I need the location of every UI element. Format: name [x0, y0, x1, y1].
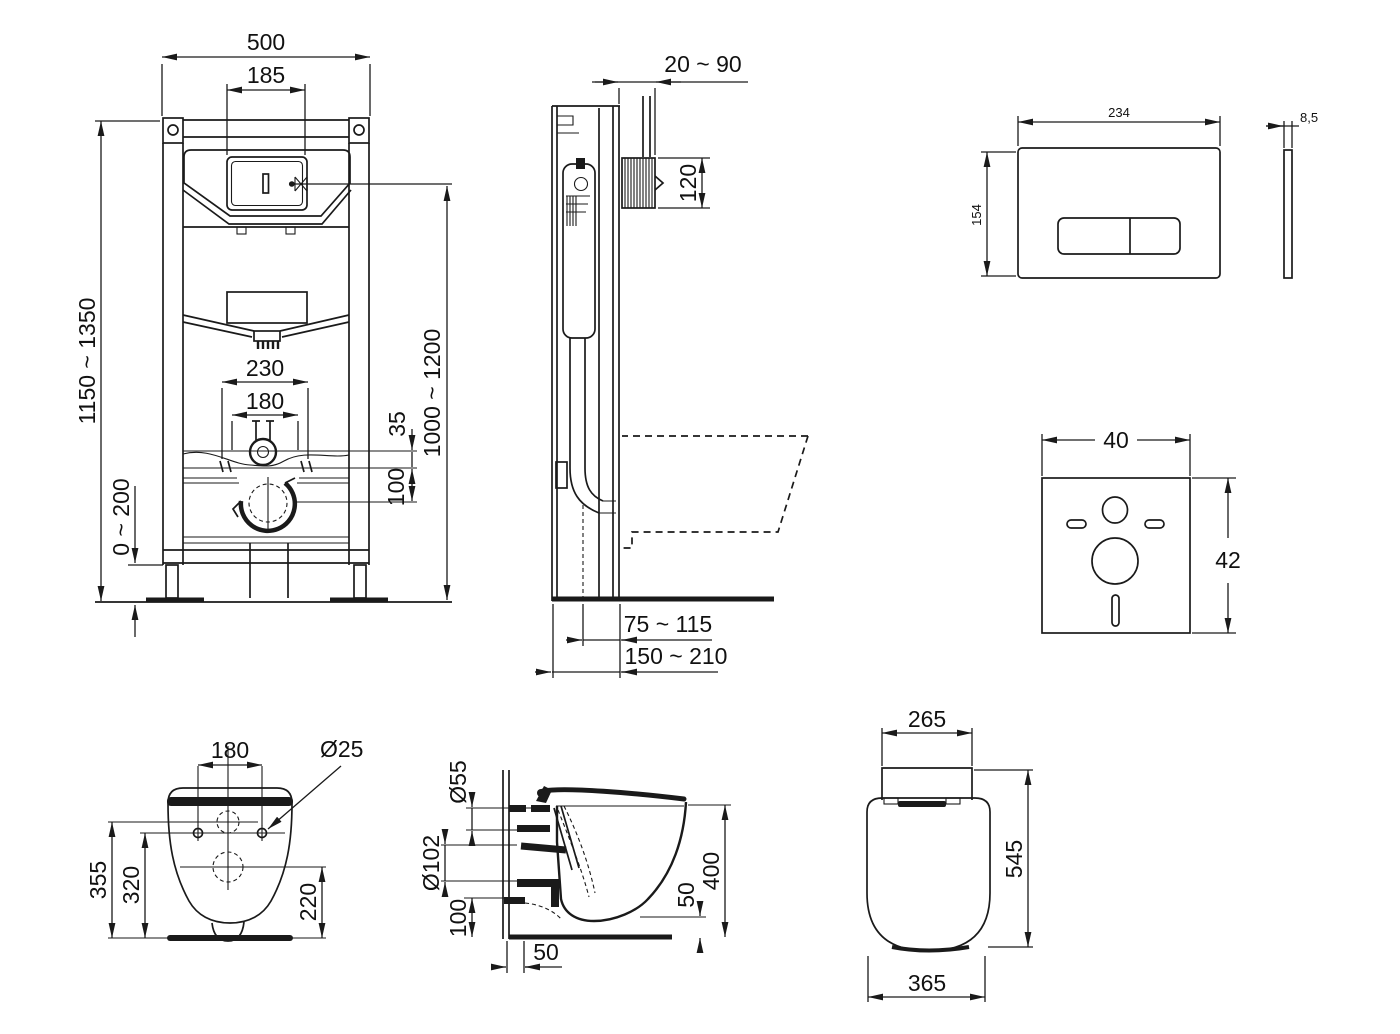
flush-plate-front-view: 234 154	[969, 105, 1220, 278]
dim-bolt-spacing: 180	[246, 388, 284, 414]
dim-frame-width: 500	[247, 29, 285, 55]
dim-bowl-depth: 545	[1001, 840, 1027, 878]
dim-inlet-height: 355	[85, 861, 111, 899]
dim-bolt-height: 320	[118, 866, 144, 904]
frame-front-view: 500 185 230 180 1150 ~ 1350 0 ~ 200 1000…	[74, 29, 452, 637]
installation-drawing: 500 185 230 180 1150 ~ 1350 0 ~ 200 1000…	[0, 0, 1400, 1034]
flush-plate	[1018, 148, 1220, 278]
dim-plate-thickness: 8,5	[1300, 110, 1318, 125]
bowl-side-view: Ø55 Ø102 100 50 50 400	[418, 760, 731, 973]
bowl-support	[183, 292, 349, 349]
dim-outlet-back: 150 ~ 210	[625, 643, 728, 669]
seat-lid	[543, 790, 684, 799]
dim-bracket-height: 120	[675, 164, 701, 202]
dim-outlet-front: 75 ~ 115	[624, 611, 712, 637]
dim-wall-distance: 20 ~ 90	[664, 51, 741, 77]
dim-outlet-diameter: Ø102	[418, 835, 444, 891]
dim-rim-height: 50	[673, 882, 699, 908]
flush-plate-profile	[1284, 150, 1292, 278]
flush-plate-side-view: 8,5	[1266, 110, 1318, 278]
dim-frame-height: 1150 ~ 1350	[74, 298, 100, 425]
dim-outlet-offset: 100	[383, 468, 409, 506]
dim-mat-width: 40	[1103, 427, 1129, 453]
mat-outline	[1042, 478, 1190, 633]
dim-overall-height: 400	[698, 852, 724, 890]
connections	[183, 421, 417, 543]
frame-side-view: 20 ~ 90 120 75 ~ 115 150 ~ 210	[535, 51, 808, 678]
tank-outline	[882, 768, 972, 800]
dim-leg-adjustment: 0 ~ 200	[108, 478, 134, 555]
flush-buttons	[1058, 218, 1180, 254]
cistern	[183, 150, 351, 234]
sound-insulation-mat-view: 40 42	[1042, 427, 1241, 633]
dim-bowl-bolt-spacing: 180	[211, 737, 249, 763]
dim-tank-width: 265	[908, 706, 946, 732]
dim-bowl-width: 365	[908, 970, 946, 996]
dim-inlet-diameter: Ø55	[445, 760, 471, 803]
dim-plate-width: 234	[1108, 105, 1130, 120]
seat-outline	[867, 798, 990, 951]
bowl-top-view: 265 545 365	[867, 706, 1033, 1002]
dim-supply-offset: 35	[384, 411, 410, 437]
dim-bolt-inset: 50	[533, 939, 559, 965]
dim-supply-spacing: 230	[246, 355, 284, 381]
dim-plate-height: 154	[969, 204, 984, 226]
dim-access-width: 185	[247, 62, 285, 88]
dim-flush-height: 1000 ~ 1200	[419, 329, 445, 458]
dim-mat-height: 42	[1215, 547, 1241, 573]
bowl-outline-dashed	[621, 436, 808, 548]
bowl-outline	[168, 788, 292, 923]
dim-outlet-height-rear: 220	[295, 883, 321, 921]
dim-outlet-height-side: 100	[445, 899, 471, 937]
dim-bolt-diameter: Ø25	[320, 736, 363, 762]
wall-line	[503, 770, 509, 939]
frame-side-dimensions: 20 ~ 90 120 75 ~ 115 150 ~ 210	[535, 51, 748, 678]
technical-drawing-page: 500 185 230 180 1150 ~ 1350 0 ~ 200 1000…	[0, 0, 1400, 1034]
bowl-rear-view: 180 Ø25 355 320 220	[85, 736, 363, 941]
